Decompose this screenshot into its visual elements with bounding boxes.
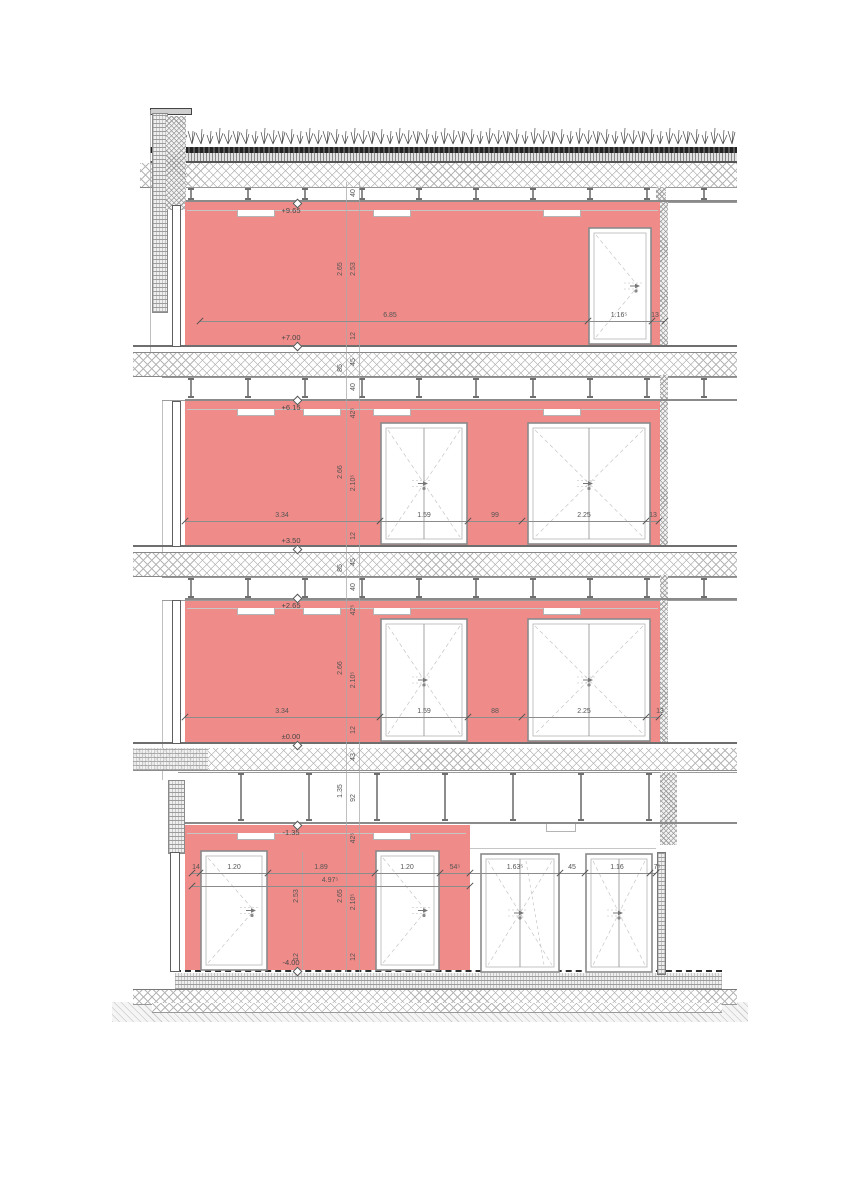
ceiling-recess-notch: [303, 409, 341, 416]
ceiling-recess-notch: [237, 409, 275, 416]
dimension-label: 14: [192, 864, 200, 872]
floor-slab-hatch: [133, 352, 737, 377]
horizontal-dim-line: [192, 873, 656, 874]
basement-ceiling-line: [178, 822, 737, 824]
ceiling-hanger-strut: [376, 773, 378, 821]
dimension-label: 1.20: [400, 864, 414, 872]
ceiling-recess-notch: [237, 608, 275, 615]
ground-left-wall-bar: [168, 780, 185, 854]
ceiling-hanger-strut: [475, 578, 477, 598]
ceiling-hanger-strut: [304, 188, 306, 200]
ceiling-line: [185, 399, 737, 401]
dimension-label: 6.85: [383, 312, 397, 320]
dimension-label: 1.63⁵: [507, 864, 524, 872]
green-roof-vegetation: [170, 108, 737, 148]
right-cut-wall: [660, 600, 668, 742]
ceiling-hanger-strut: [646, 188, 648, 200]
basement-ceiling-void: [178, 772, 737, 824]
left-window-mullion: [172, 205, 181, 347]
ground-left-window-mullion: [170, 852, 180, 972]
dimension-label-rotated: 45: [350, 358, 358, 366]
ceiling-hanger-strut: [361, 378, 363, 398]
ceiling-hanger-strut: [190, 578, 192, 598]
ceiling-recess-notch: [543, 608, 581, 615]
ceiling-hanger-strut: [703, 578, 705, 598]
dimension-label: 1.20: [227, 864, 241, 872]
dimension-label-rotated: 12: [350, 726, 358, 734]
ceiling-hanger-strut: [703, 188, 705, 200]
dimension-label-rotated: 12: [350, 953, 358, 961]
slab-edge-brick-band: [133, 748, 208, 770]
ceiling-hanger-strut: [475, 188, 477, 200]
door-lintel-line: [470, 848, 656, 849]
dimension-label: 1.89: [314, 864, 328, 872]
roof-void-wall-stub: [656, 187, 666, 201]
ceiling-recess-notch: [237, 210, 275, 217]
parapet-insulation-bar: [166, 116, 186, 210]
dimension-label: 45: [568, 864, 576, 872]
ceiling-recess-notch: [546, 824, 576, 832]
dimension-label-rotated: 42⁵: [350, 408, 358, 419]
ceiling-hanger-strut: [240, 773, 242, 821]
dimension-label-rotated: 12: [350, 532, 358, 540]
ceiling-hanger-strut: [418, 378, 420, 398]
suspended-ceiling-line: [187, 833, 466, 834]
floor-finish-line: [133, 545, 737, 547]
ceiling-hanger-strut: [247, 188, 249, 200]
dimension-label-rotated: 12: [350, 332, 358, 340]
section-drawing-sheet: 6.851.16⁵133.341.59992.25133.341.59882.2…: [0, 0, 842, 1191]
horizontal-dim-line: [192, 886, 470, 887]
floor-finish-line: [133, 345, 737, 347]
dimension-label: 13: [649, 512, 657, 520]
ceiling-line: [185, 598, 737, 600]
ceiling-hanger-strut: [646, 378, 648, 398]
double-door: [380, 618, 468, 742]
right-wall-pier-hatch: [660, 772, 677, 845]
dimension-label: 7⁵: [654, 864, 661, 872]
dimension-label: 13: [651, 312, 659, 320]
dimension-label: 4.97⁵: [322, 877, 339, 885]
ceiling-recess-notch: [303, 608, 341, 615]
dimension-label-rotated: 42⁵: [350, 833, 358, 844]
vertical-dim-chain-line: [359, 182, 360, 972]
horizontal-dim-line: [200, 321, 665, 322]
ceiling-recess-notch: [373, 833, 411, 840]
ceiling-recess-notch: [373, 608, 411, 615]
horizontal-dim-line: [185, 717, 659, 718]
dimension-label: 88: [491, 708, 499, 716]
single-door: [588, 227, 652, 345]
dimension-label: 13: [656, 708, 664, 716]
dimension-label: 2.25: [577, 708, 591, 716]
ceiling-hanger-strut: [361, 578, 363, 598]
ceiling-hanger-strut: [304, 578, 306, 598]
ceiling-hanger-strut: [646, 578, 648, 598]
ceiling-recess-notch: [543, 210, 581, 217]
door-height-dim-line: [302, 852, 303, 970]
ceiling-hanger-strut: [304, 378, 306, 398]
ceiling-hanger-strut: [247, 378, 249, 398]
ceiling-hanger-strut: [589, 188, 591, 200]
ceiling-hanger-strut: [418, 578, 420, 598]
dimension-label-rotated: 92: [350, 794, 358, 802]
dimension-label-rotated: 40: [350, 189, 358, 197]
left-window-mullion: [172, 401, 181, 547]
dimension-label: 54⁵: [450, 864, 461, 872]
left-window-mullion: [172, 600, 181, 744]
dimension-label: 1.16: [610, 864, 624, 872]
dimension-label: 1.59: [417, 708, 431, 716]
slab-bottom-line: [133, 770, 737, 771]
vertical-dim-chain-line: [346, 182, 347, 972]
right-wall-through-void: [660, 375, 668, 402]
dimension-label-rotated: 2.53: [350, 262, 358, 276]
dimension-label-rotated: 2.10⁵: [350, 475, 358, 492]
dimension-label: 1.59: [417, 512, 431, 520]
ceiling-hanger-strut: [418, 188, 420, 200]
ceiling-hanger-strut: [475, 378, 477, 398]
dimension-label-rotated: 45: [350, 558, 358, 566]
dimension-label-rotated: 85: [337, 564, 345, 572]
dimension-label-rotated: 85: [337, 364, 345, 372]
foundation-slab-step-hatch: [152, 1003, 722, 1013]
dimension-label-rotated: 2.10⁵: [350, 894, 358, 911]
dimension-label-rotated: 2.66: [337, 661, 345, 675]
ceiling-hanger-strut: [361, 188, 363, 200]
dimension-label: 3.34: [275, 512, 289, 520]
dimension-label: 3.34: [275, 708, 289, 716]
roof-insulation-hatch: [140, 163, 737, 188]
dimension-label-rotated: 40: [350, 383, 358, 391]
ceiling-hanger-strut: [703, 378, 705, 398]
ceiling-hanger-strut: [308, 773, 310, 821]
dimension-label: 1.16⁵: [611, 312, 628, 320]
floor-finish-line: [133, 742, 737, 744]
ceiling-hanger-strut: [247, 578, 249, 598]
double-door: [527, 422, 651, 545]
dimension-label-rotated: 43: [350, 753, 358, 761]
dimension-label-rotated: 2.65: [337, 889, 345, 903]
ceiling-recess-notch: [373, 210, 411, 217]
ceiling-recess-notch: [237, 833, 275, 840]
ceiling-hanger-strut: [589, 578, 591, 598]
ceiling-hanger-strut: [532, 378, 534, 398]
ceiling-hanger-strut: [444, 773, 446, 821]
dimension-label: 99: [491, 512, 499, 520]
right-cut-wall: [660, 401, 668, 545]
floor-build-up-band: [175, 973, 722, 989]
dimension-label: 2.25: [577, 512, 591, 520]
ceiling-hanger-strut: [512, 773, 514, 821]
dimension-label-rotated: 1.35: [337, 784, 345, 798]
double-door: [527, 618, 651, 742]
ceiling-recess-notch: [543, 409, 581, 416]
dimension-label-rotated: 2.65: [337, 262, 345, 276]
ceiling-hanger-strut: [580, 773, 582, 821]
dimension-label-rotated: 42⁵: [350, 605, 358, 616]
double-door: [380, 422, 468, 545]
ceiling-hanger-strut: [190, 378, 192, 398]
left-facade-outer-line: [150, 110, 151, 362]
floor-slab-hatch: [133, 748, 737, 770]
ceiling-hanger-strut: [532, 188, 534, 200]
dimension-label-rotated: 40: [350, 583, 358, 591]
ceiling-recess-notch: [373, 409, 411, 416]
ceiling-hanger-strut: [190, 188, 192, 200]
dimension-label-rotated: 2.66: [337, 465, 345, 479]
ceiling-hanger-strut: [648, 773, 650, 821]
horizontal-dim-line: [185, 521, 659, 522]
floor-slab-hatch: [133, 552, 737, 577]
dimension-label-rotated: 2.53: [293, 889, 301, 903]
ceiling-hanger-strut: [589, 378, 591, 398]
ceiling-hanger-strut: [532, 578, 534, 598]
dimension-label-rotated: 2.10⁵: [350, 672, 358, 689]
